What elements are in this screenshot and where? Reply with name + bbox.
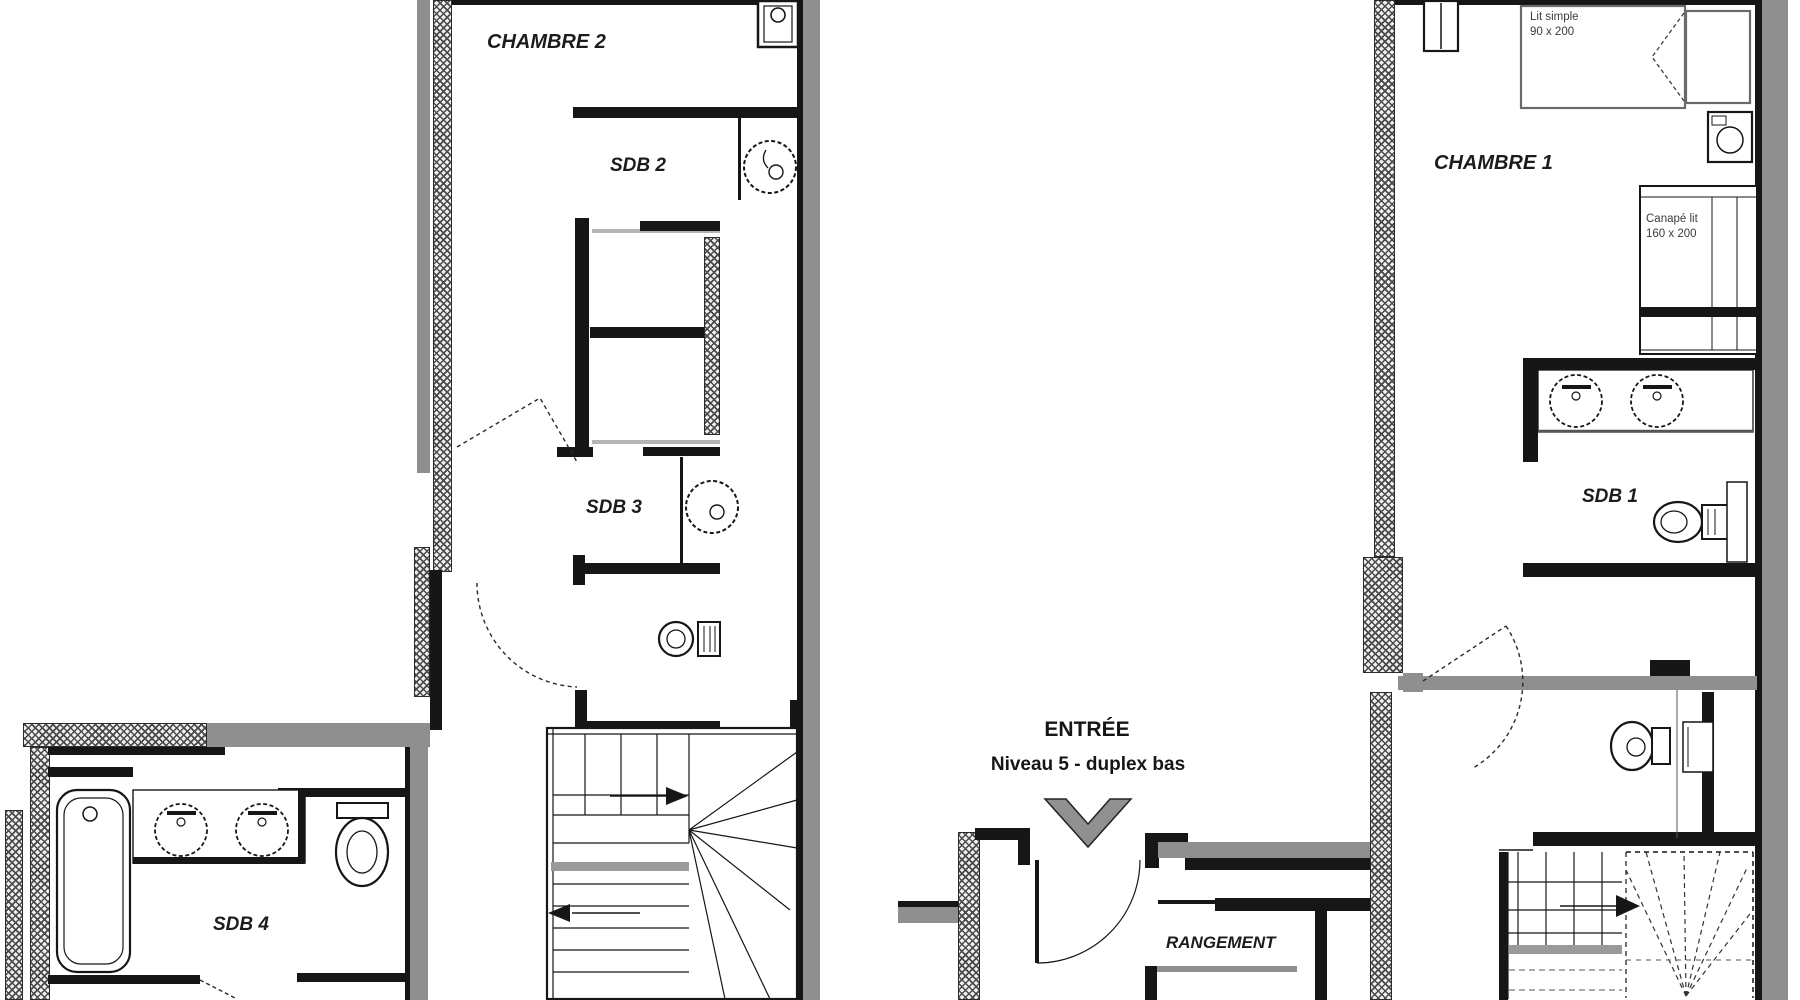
toilet-icon xyxy=(659,622,720,656)
sink-icon xyxy=(686,481,738,533)
fixtures-layer xyxy=(0,0,1800,1000)
room-label-rangement: RANGEMENT xyxy=(1166,933,1276,953)
room-label-sdb1: SDB 1 xyxy=(1582,486,1638,508)
double-sink-vanity xyxy=(1538,370,1753,432)
door-swing-arc xyxy=(200,980,237,999)
sofa-size-line1: Canapé lit xyxy=(1646,212,1698,227)
room-label-sdb2: SDB 2 xyxy=(610,155,666,177)
door-swing-arc xyxy=(1423,626,1523,768)
sofa-size-line2: 160 x 200 xyxy=(1646,227,1698,242)
toilet-icon xyxy=(336,803,388,886)
radiator-icon xyxy=(1683,722,1713,772)
washbasin-icon xyxy=(758,1,798,47)
door-swing-arc xyxy=(457,398,577,687)
room-label-sdb3: SDB 3 xyxy=(586,497,642,519)
bed-size-line2: 90 x 200 xyxy=(1530,25,1579,40)
room-label-sdb4: SDB 4 xyxy=(213,914,269,936)
radiator-icon xyxy=(1727,482,1747,562)
entrance-subtitle: Niveau 5 - duplex bas xyxy=(968,754,1208,776)
sofa-size-label: Canapé lit 160 x 200 xyxy=(1646,212,1698,242)
room-label-chambre2: CHAMBRE 2 xyxy=(487,31,606,54)
bathtub-icon xyxy=(57,790,130,972)
wall-cabinet-icon xyxy=(1424,1,1458,51)
sink-icon xyxy=(744,141,796,193)
entry-door xyxy=(1037,860,1140,963)
bed-size-label: Lit simple 90 x 200 xyxy=(1530,10,1579,40)
toilet-icon xyxy=(1611,722,1670,770)
room-label-chambre1: CHAMBRE 1 xyxy=(1434,152,1553,175)
winder-staircase xyxy=(547,728,797,999)
toilet-icon xyxy=(1654,502,1728,542)
entrance-title: ENTRÉE xyxy=(1007,718,1167,742)
entry-direction-arrow-icon xyxy=(1045,799,1131,847)
bed-size-line1: Lit simple xyxy=(1530,10,1579,25)
floor-plan: CHAMBRE 2 SDB 2 SDB 3 SDB 4 CHAMBRE 1 SD… xyxy=(0,0,1800,1000)
bedside-unit-icon xyxy=(1708,112,1752,162)
double-sink-vanity xyxy=(133,790,305,864)
staircase xyxy=(1499,850,1753,999)
